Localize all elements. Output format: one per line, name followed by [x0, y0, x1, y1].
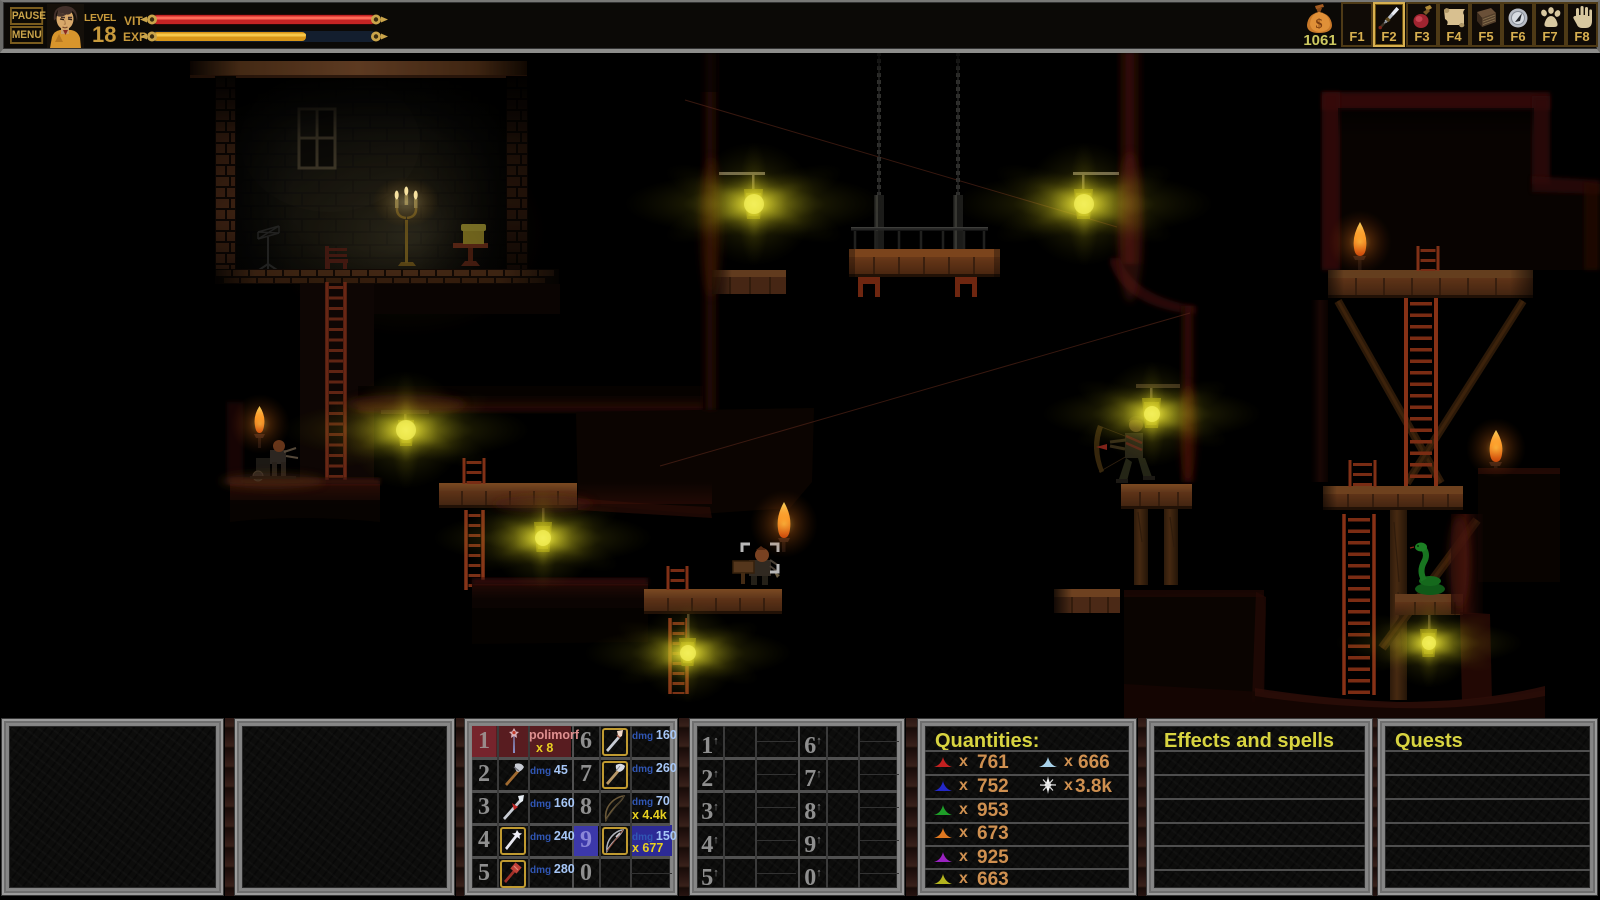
- svg-text:$: $: [1316, 17, 1323, 32]
